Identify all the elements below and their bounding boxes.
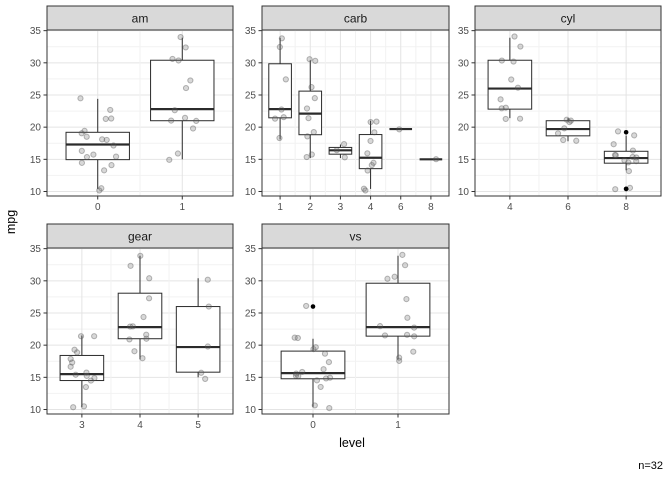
x-tick-label: 4 (137, 420, 143, 431)
jitter-point (97, 188, 102, 193)
jitter-point (83, 384, 88, 389)
x-tick-label: 1 (395, 420, 401, 431)
box (176, 307, 220, 373)
jitter-point (78, 334, 83, 339)
jitter-point (272, 116, 277, 121)
jitter-point (91, 152, 96, 157)
jitter-point (561, 137, 566, 142)
jitter-point (113, 154, 118, 159)
facet-vs: 10152025303501vs (245, 224, 449, 431)
y-tick-label: 25 (245, 308, 257, 319)
jitter-point (205, 344, 210, 349)
jitter-point (377, 324, 382, 329)
jitter-point (169, 118, 174, 123)
jitter-point (326, 359, 331, 364)
jitter-point (363, 188, 368, 193)
x-axis-title: level (339, 436, 365, 450)
y-tick-label: 15 (245, 373, 257, 384)
jitter-point (564, 117, 569, 122)
y-tick-label: 35 (245, 26, 257, 37)
jitter-point (368, 119, 373, 124)
jitter-point (404, 297, 409, 302)
box (281, 351, 345, 379)
box (488, 60, 532, 109)
strip-label: cyl (561, 12, 576, 26)
jitter-point (100, 137, 105, 142)
jitter-point (555, 131, 560, 136)
jitter-point (313, 345, 318, 350)
jitter-point (313, 58, 318, 63)
jitter-point (615, 129, 620, 134)
jitter-point (365, 168, 370, 173)
jitter-point (341, 141, 346, 146)
jitter-point (68, 356, 73, 361)
jitter-point (102, 168, 107, 173)
jitter-point (403, 263, 408, 268)
jitter-point (412, 334, 417, 339)
facet-carb: 101520253035123468carb (245, 6, 449, 213)
jitter-point (574, 138, 579, 143)
jitter-point (306, 116, 311, 121)
outlier-point (311, 304, 316, 309)
jitter-point (412, 325, 417, 330)
jitter-point (512, 34, 517, 39)
jitter-point (183, 45, 188, 50)
jitter-point (79, 160, 84, 165)
jitter-point (612, 152, 617, 157)
y-tick-label: 10 (245, 187, 257, 198)
jitter-point (503, 105, 508, 110)
jitter-point (73, 372, 78, 377)
jitter-point (433, 157, 438, 162)
jitter-point (84, 154, 89, 159)
x-tick-label: 8 (623, 202, 629, 213)
jitter-point (188, 78, 193, 83)
facet-am: 10152025303501am (30, 6, 233, 213)
jitter-point (170, 56, 175, 61)
jitter-point (79, 148, 84, 153)
y-tick-label: 20 (30, 123, 42, 134)
jitter-point (321, 367, 326, 372)
y-tick-label: 30 (30, 276, 42, 287)
jitter-point (141, 314, 146, 319)
jitter-point (397, 127, 402, 132)
jitter-point (385, 276, 390, 281)
y-tick-label: 30 (245, 58, 257, 69)
jitter-point (140, 356, 145, 361)
jitter-point (342, 155, 347, 160)
jitter-point (199, 370, 204, 375)
y-tick-label: 15 (30, 155, 42, 166)
jitter-point (304, 154, 309, 159)
jitter-point (509, 77, 514, 82)
jitter-point (190, 126, 195, 131)
y-tick-label: 35 (245, 244, 257, 255)
y-tick-label: 15 (30, 373, 42, 384)
jitter-point (283, 77, 288, 82)
y-tick-label: 10 (245, 405, 257, 416)
jitter-point (307, 57, 312, 62)
y-tick-label: 30 (30, 58, 42, 69)
jitter-point (374, 119, 379, 124)
jitter-point (611, 142, 616, 147)
y-tick-label: 35 (30, 244, 42, 255)
jitter-point (72, 347, 77, 352)
x-tick-label: 3 (338, 202, 344, 213)
jitter-point (292, 335, 297, 340)
jitter-point (318, 384, 323, 389)
facet-gear: 101520253035345gear (30, 224, 233, 431)
jitter-point (172, 108, 177, 113)
jitter-point (146, 296, 151, 301)
jitter-point (84, 134, 89, 139)
jitter-point (183, 85, 188, 90)
jitter-point (405, 315, 410, 320)
x-tick-label: 3 (79, 420, 85, 431)
y-tick-label: 15 (245, 155, 257, 166)
jitter-point (392, 274, 397, 279)
jitter-point (309, 152, 314, 157)
y-tick-label: 20 (245, 123, 257, 134)
jitter-point (305, 134, 310, 139)
x-tick-label: 2 (307, 202, 313, 213)
jitter-point (368, 138, 373, 143)
jitter-point (178, 34, 183, 39)
jitter-point (404, 332, 409, 337)
jitter-point (92, 334, 97, 339)
y-tick-label: 30 (458, 58, 470, 69)
jitter-point (312, 96, 317, 101)
x-tick-label: 0 (310, 420, 316, 431)
jitter-point (130, 324, 135, 329)
jitter-point (71, 405, 76, 410)
x-tick-label: 1 (179, 202, 185, 213)
jitter-point (109, 116, 114, 121)
y-tick-label: 10 (458, 187, 470, 198)
y-tick-label: 20 (458, 123, 470, 134)
y-tick-label: 30 (245, 276, 257, 287)
jitter-point (300, 369, 305, 374)
jitter-point (279, 36, 284, 41)
jitter-point (634, 155, 639, 160)
jitter-point (632, 133, 637, 138)
jitter-point (132, 349, 137, 354)
jitter-point (365, 151, 370, 156)
y-axis-title: mpg (4, 210, 18, 234)
chart-svg: 10152025303501am101520253035123468carb10… (0, 0, 672, 480)
jitter-point (327, 405, 332, 410)
outlier-point (624, 130, 629, 135)
x-tick-label: 6 (398, 202, 404, 213)
jitter-point (182, 115, 187, 120)
jitter-point (372, 130, 377, 135)
jitter-point (511, 59, 516, 64)
jitter-point (411, 349, 416, 354)
y-tick-label: 25 (458, 90, 470, 101)
jitter-point (503, 116, 508, 121)
jitter-point (281, 115, 286, 120)
jitter-point (277, 135, 282, 140)
jitter-point (517, 116, 522, 121)
y-tick-label: 10 (30, 405, 42, 416)
jitter-point (128, 263, 133, 268)
jitter-point (294, 371, 299, 376)
faceted-boxplot-figure: 10152025303501am101520253035123468carb10… (0, 0, 672, 480)
jitter-point (103, 116, 108, 121)
jitter-point (613, 187, 618, 192)
jitter-point (147, 276, 152, 281)
jitter-point (626, 169, 631, 174)
jitter-point (382, 333, 387, 338)
y-tick-label: 20 (245, 341, 257, 352)
jitter-point (622, 158, 627, 163)
jitter-point (109, 163, 114, 168)
jitter-point (518, 44, 523, 49)
x-tick-label: 4 (368, 202, 374, 213)
jitter-point (397, 355, 402, 360)
x-tick-label: 6 (565, 202, 571, 213)
strip-label: vs (350, 230, 362, 244)
jitter-point (108, 107, 113, 112)
x-tick-label: 8 (428, 202, 434, 213)
jitter-point (312, 403, 317, 408)
jitter-point (78, 96, 83, 101)
jitter-point (304, 106, 309, 111)
jitter-point (82, 128, 87, 133)
strip-label: am (132, 12, 149, 26)
y-tick-label: 35 (458, 26, 470, 37)
box (118, 293, 162, 339)
jitter-point (138, 253, 143, 258)
jitter-point (111, 143, 116, 148)
x-tick-label: 0 (95, 202, 101, 213)
jitter-point (322, 351, 327, 356)
jitter-point (205, 277, 210, 282)
x-tick-label: 5 (195, 420, 201, 431)
jitter-point (84, 370, 89, 375)
jitter-point (277, 44, 282, 49)
jitter-point (176, 58, 181, 63)
y-tick-label: 25 (30, 308, 42, 319)
jitter-point (304, 303, 309, 308)
jitter-point (167, 157, 172, 162)
box (66, 132, 129, 159)
jitter-point (311, 129, 316, 134)
outlier-point (624, 187, 629, 192)
jitter-point (92, 376, 97, 381)
jitter-point (334, 148, 339, 153)
jitter-point (144, 332, 149, 337)
sample-size-caption: n=32 (638, 460, 663, 472)
box (151, 60, 214, 120)
jitter-point (127, 337, 132, 342)
jitter-point (400, 252, 405, 257)
jitter-point (630, 148, 635, 153)
facet-cyl: 101520253035468cyl (458, 6, 661, 213)
jitter-point (314, 378, 319, 383)
y-tick-label: 35 (30, 26, 42, 37)
y-tick-label: 20 (30, 341, 42, 352)
jitter-point (279, 107, 284, 112)
y-tick-label: 15 (458, 155, 470, 166)
strip-label: gear (128, 230, 152, 244)
jitter-point (323, 376, 328, 381)
jitter-point (206, 304, 211, 309)
y-tick-label: 25 (30, 90, 42, 101)
jitter-point (371, 160, 376, 165)
jitter-point (175, 151, 180, 156)
y-tick-label: 10 (30, 187, 42, 198)
y-tick-label: 25 (245, 90, 257, 101)
jitter-point (203, 376, 208, 381)
strip-label: carb (344, 12, 368, 26)
x-tick-label: 1 (277, 202, 283, 213)
x-tick-label: 4 (507, 202, 513, 213)
jitter-point (499, 58, 504, 63)
jitter-point (562, 126, 567, 131)
jitter-point (309, 85, 314, 90)
jitter-point (81, 404, 86, 409)
jitter-point (194, 118, 199, 123)
jitter-point (498, 97, 503, 102)
jitter-point (515, 85, 520, 90)
